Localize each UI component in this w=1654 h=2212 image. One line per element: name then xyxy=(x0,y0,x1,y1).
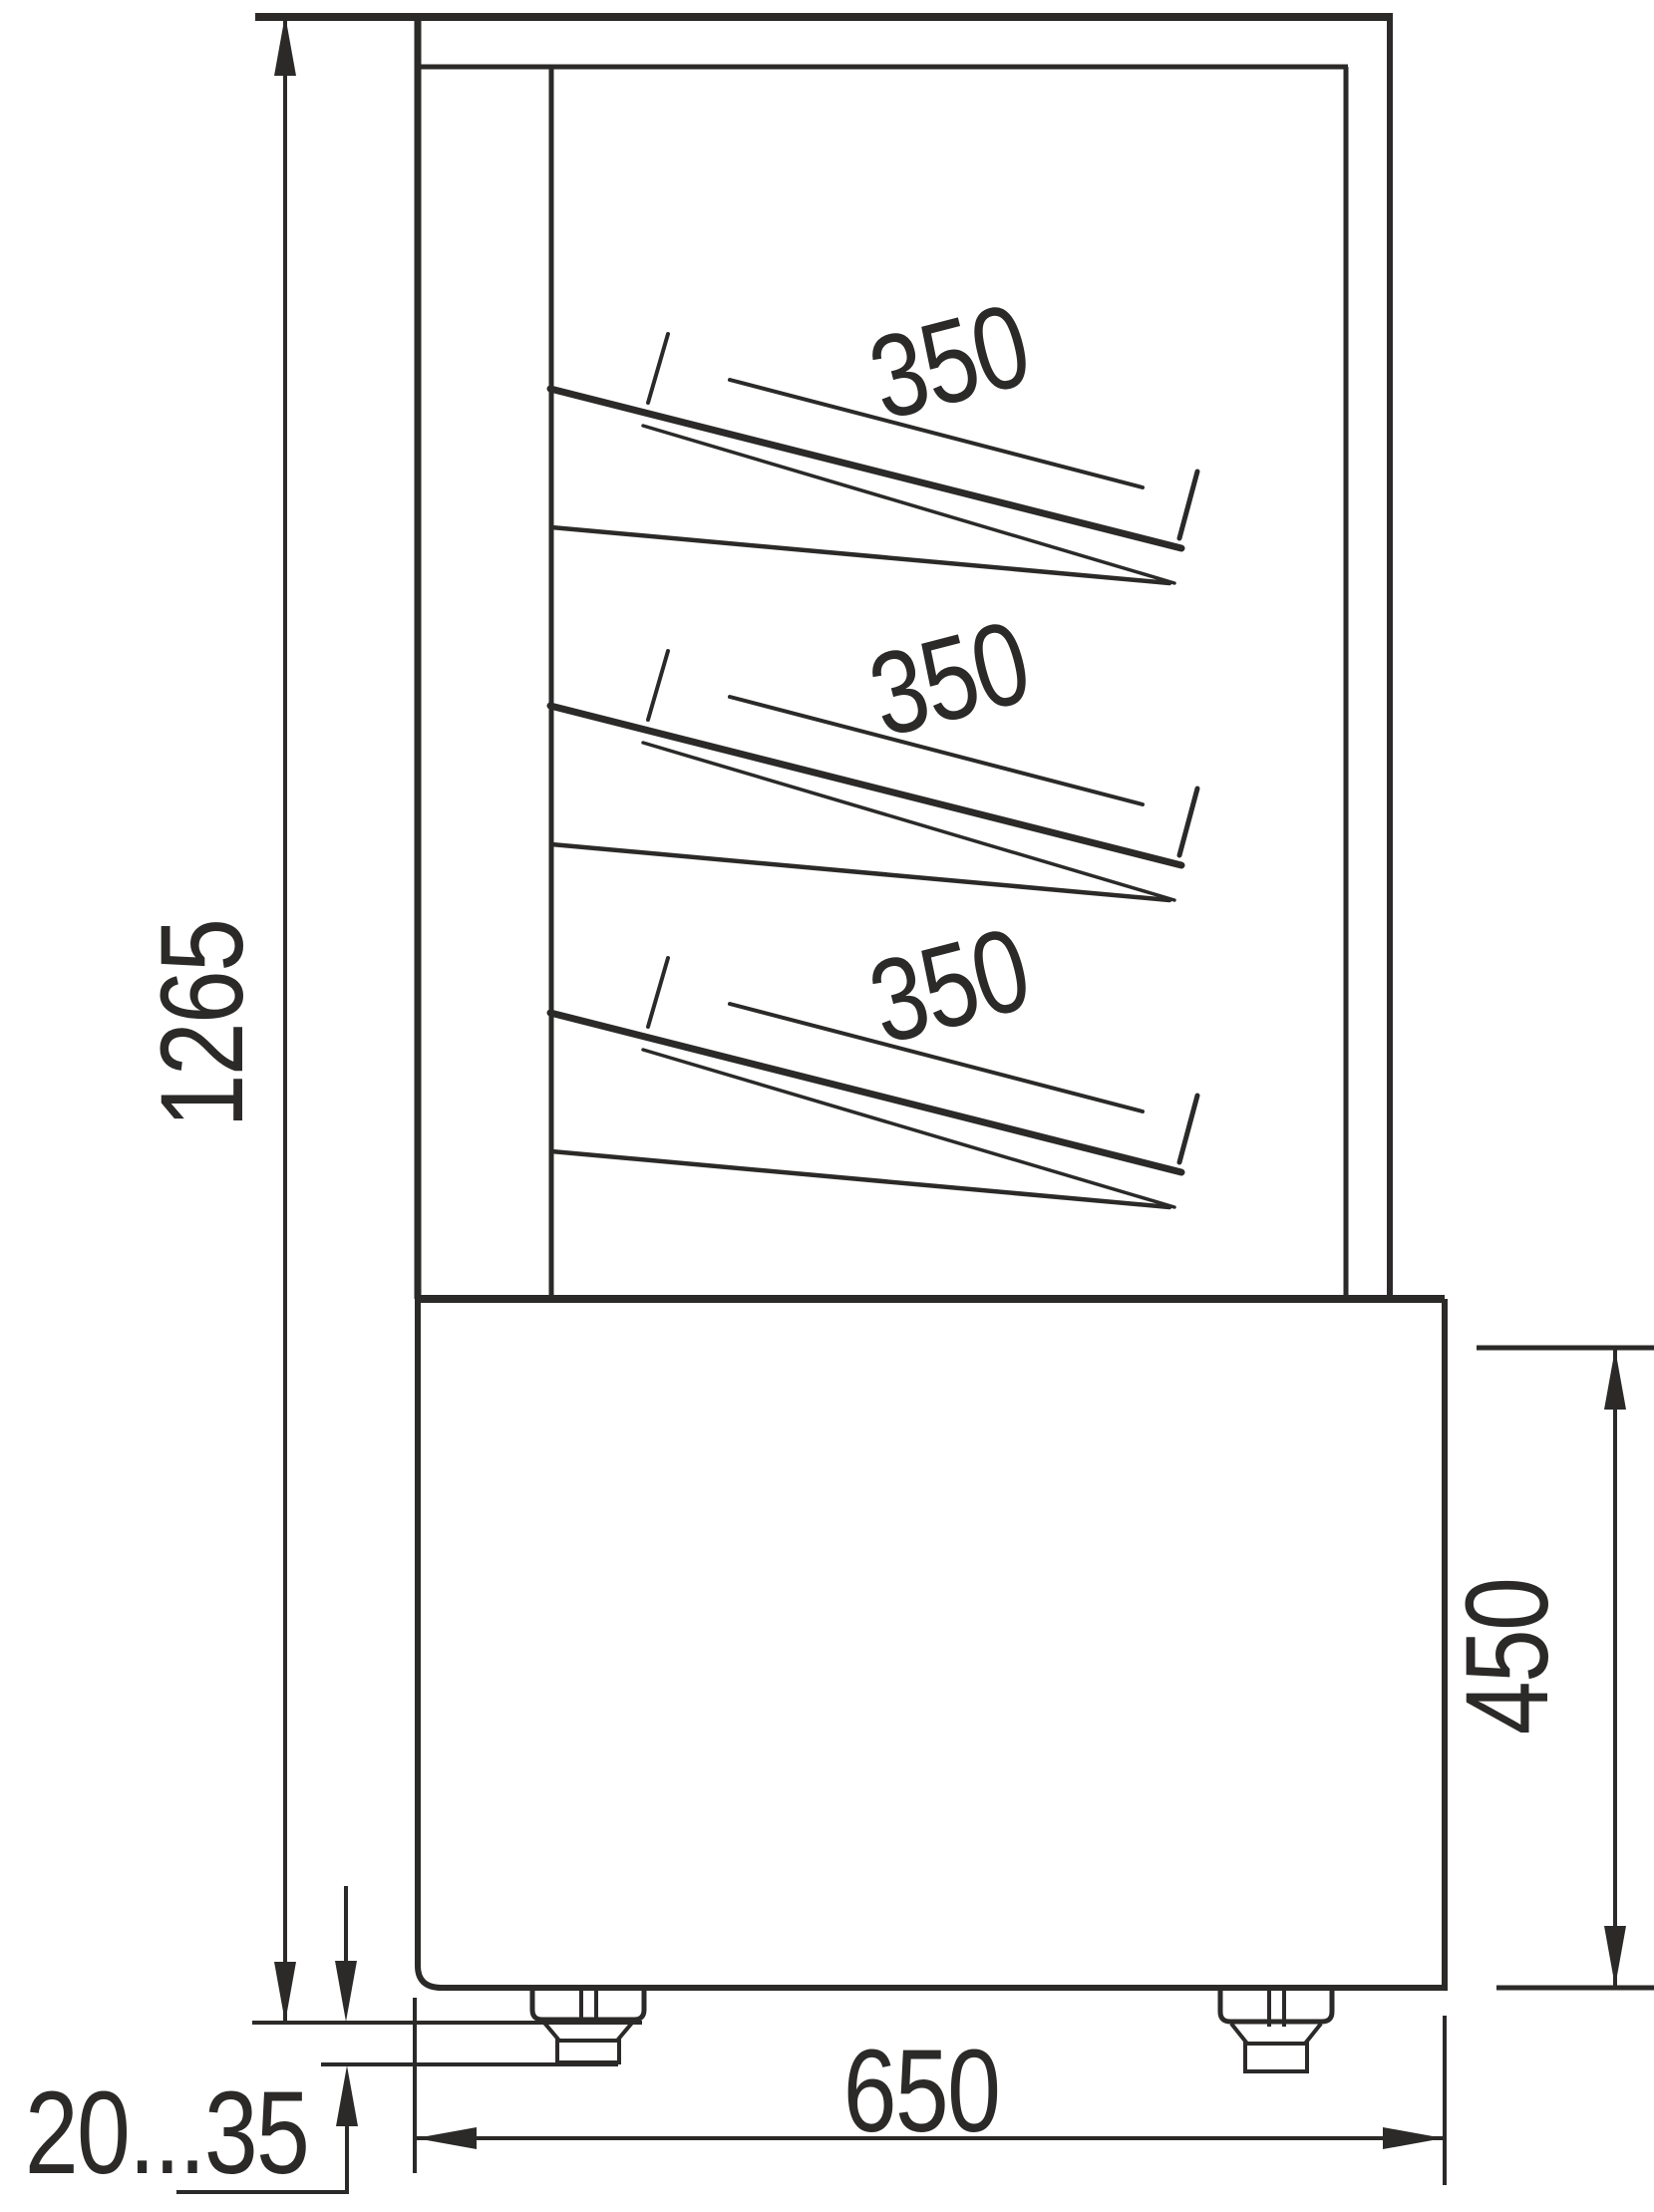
shelf-2-depth-label: 350 xyxy=(856,595,1041,762)
overall-height-bottom-arrow xyxy=(274,1962,296,2023)
foot-adjust-lower-arrow xyxy=(336,2065,358,2126)
dimension-base-depth: 650 xyxy=(415,1998,1445,2185)
dimension-foot-adjustment: 20...35 xyxy=(25,1886,618,2198)
base-height-label: 450 xyxy=(1441,1579,1572,1736)
overall-height-label: 1265 xyxy=(136,920,267,1128)
left-foot-mount-block xyxy=(532,1988,644,2020)
shelf-2-surface-line xyxy=(550,706,1181,865)
shelf-1-front-lip xyxy=(1179,472,1197,538)
base-depth-label: 650 xyxy=(843,2025,1000,2156)
shelf-3-depth-label: 350 xyxy=(856,902,1041,1069)
base-height-bottom-arrow xyxy=(1604,1926,1626,1987)
base-cabinet xyxy=(415,1299,1445,1988)
shelf-3-extension-tick xyxy=(648,958,668,1027)
right-foot-chamfer-right xyxy=(1305,2024,1321,2044)
case-upper-section xyxy=(255,17,1393,1299)
foot-adjust-upper-arrow xyxy=(335,1961,357,2022)
shelf-1-depth-label: 350 xyxy=(856,278,1041,445)
left-foot xyxy=(532,1988,644,2062)
overall-height-top-arrow xyxy=(274,15,296,76)
foot-adjust-label: 20...35 xyxy=(25,2066,308,2198)
base-height-top-arrow xyxy=(1604,1349,1626,1410)
shelf-2: 350 xyxy=(550,595,1197,900)
dimension-base-height: 450 xyxy=(1441,1348,1654,1988)
shelf-1-extension-tick xyxy=(648,334,668,403)
drawing-canvas: 350 350 350 xyxy=(0,0,1654,2212)
shelf-3-surface-line xyxy=(550,1013,1181,1172)
shelf-2-front-lip xyxy=(1179,789,1197,855)
right-foot-mount-block xyxy=(1220,1988,1332,2022)
shelf-1-surface-line xyxy=(550,389,1181,548)
shelf-3: 350 xyxy=(550,902,1197,1207)
shelf-1: 350 xyxy=(550,278,1197,583)
shelf-3-front-lip xyxy=(1179,1096,1197,1162)
base-depth-right-arrow xyxy=(1383,2127,1444,2149)
base-depth-left-arrow xyxy=(416,2127,477,2149)
shelf-2-extension-tick xyxy=(648,651,668,720)
display-case-dimension-drawing: 350 350 350 xyxy=(0,0,1654,2212)
base-body-outline xyxy=(418,1299,1445,1988)
left-foot-pad xyxy=(557,2041,619,2062)
right-foot-chamfer-left xyxy=(1231,2024,1247,2044)
right-foot-pad xyxy=(1245,2044,1307,2071)
right-foot xyxy=(1220,1988,1332,2071)
